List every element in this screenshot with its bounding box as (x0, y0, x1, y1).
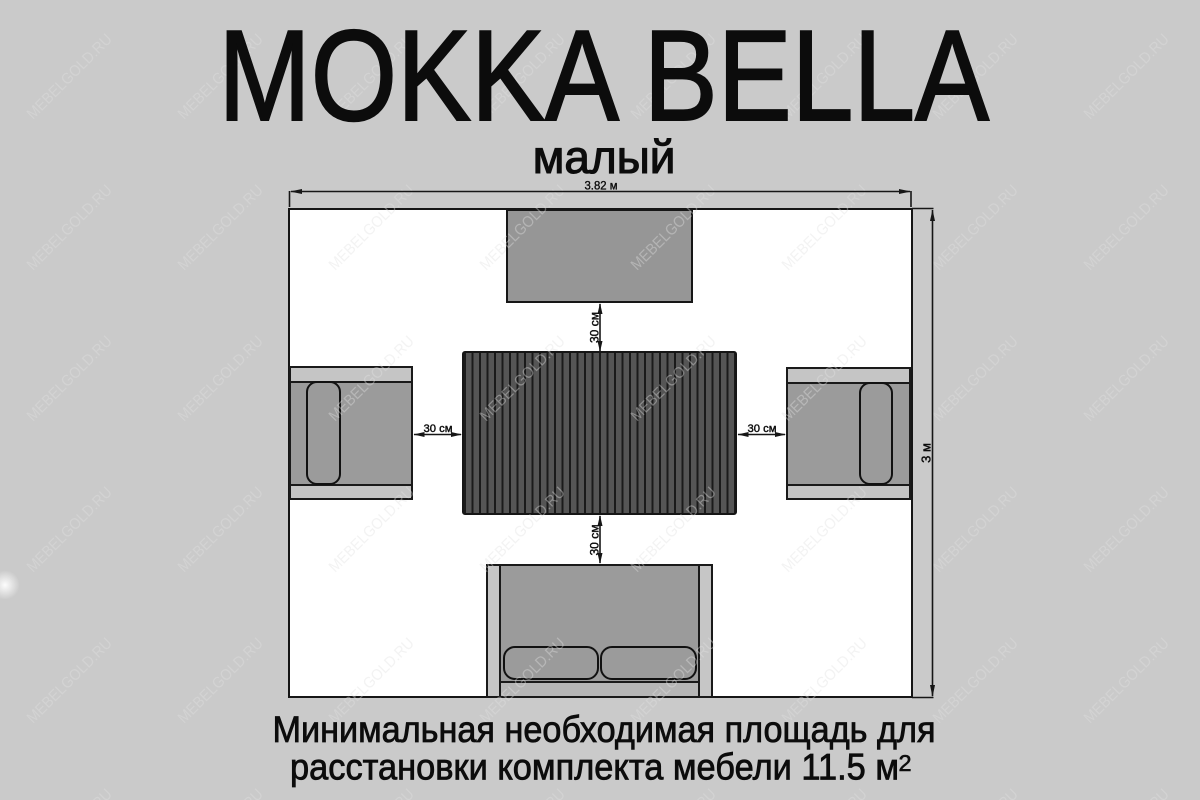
svg-text:30 см: 30 см (748, 423, 777, 435)
svg-text:3.82 м: 3.82 м (585, 181, 618, 193)
svg-text:30 см: 30 см (588, 312, 602, 343)
svg-text:30 см: 30 см (424, 423, 453, 435)
svg-text:2: 2 (899, 750, 912, 776)
svg-text:MOKKA BELLA: MOKKA BELLA (218, 4, 989, 148)
svg-text:малый: малый (533, 131, 676, 183)
svg-text:Минимальная необходимая площад: Минимальная необходимая площадь для (273, 708, 936, 750)
svg-text:30 см: 30 см (588, 525, 602, 556)
svg-text:3 м: 3 м (919, 443, 934, 463)
svg-text:расстановки комплекта мебели 1: расстановки комплекта мебели 11.5 м (290, 746, 899, 788)
